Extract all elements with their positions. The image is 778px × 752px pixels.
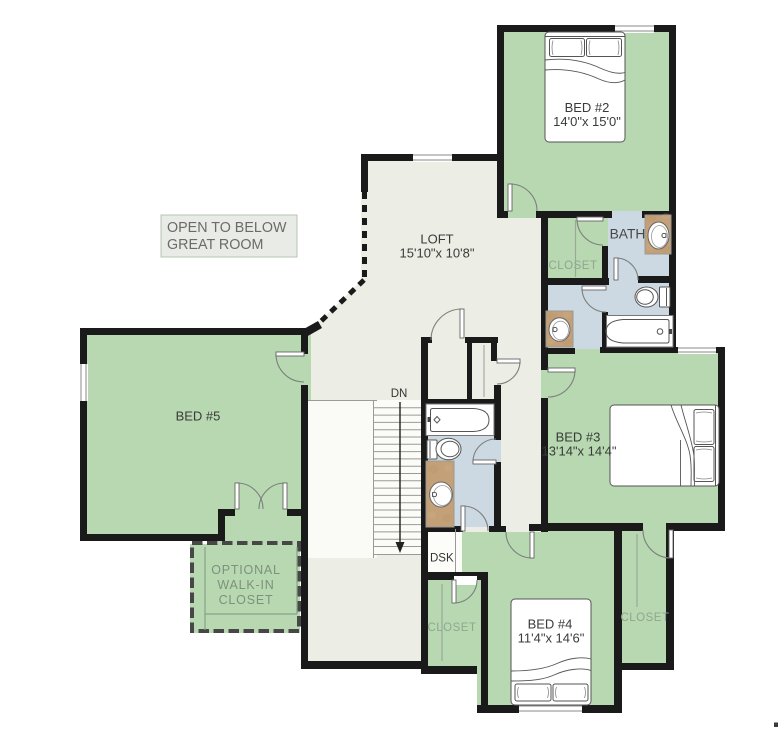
svg-text:11'4"x 14'6": 11'4"x 14'6": [518, 631, 585, 646]
svg-text:14'0"x 15'0": 14'0"x 15'0": [553, 114, 621, 129]
svg-text:LOFT: LOFT: [420, 232, 453, 247]
svg-text:15'10"x 10'8": 15'10"x 10'8": [400, 246, 475, 261]
svg-text:BED #4: BED #4: [528, 617, 573, 632]
svg-text:OPEN TO BELOW: OPEN TO BELOW: [167, 220, 287, 236]
svg-text:BED #2: BED #2: [565, 100, 610, 115]
svg-text:BED #3: BED #3: [556, 430, 601, 445]
svg-text:WALK-IN: WALK-IN: [217, 578, 274, 592]
svg-text:CLOSET: CLOSET: [548, 260, 597, 272]
svg-text:DN: DN: [391, 388, 408, 400]
svg-text:CLOSET: CLOSET: [219, 593, 274, 607]
svg-text:GREAT ROOM: GREAT ROOM: [167, 237, 263, 253]
svg-text:13'14"x 14'4": 13'14"x 14'4": [542, 444, 617, 459]
svg-text:DSK: DSK: [430, 553, 454, 565]
svg-text:BATH: BATH: [610, 227, 646, 242]
svg-text:OPTIONAL: OPTIONAL: [211, 563, 281, 577]
svg-text:CLOSET: CLOSET: [427, 622, 476, 634]
svg-text:BED #5: BED #5: [176, 409, 221, 424]
svg-text:CLOSET: CLOSET: [620, 612, 669, 624]
